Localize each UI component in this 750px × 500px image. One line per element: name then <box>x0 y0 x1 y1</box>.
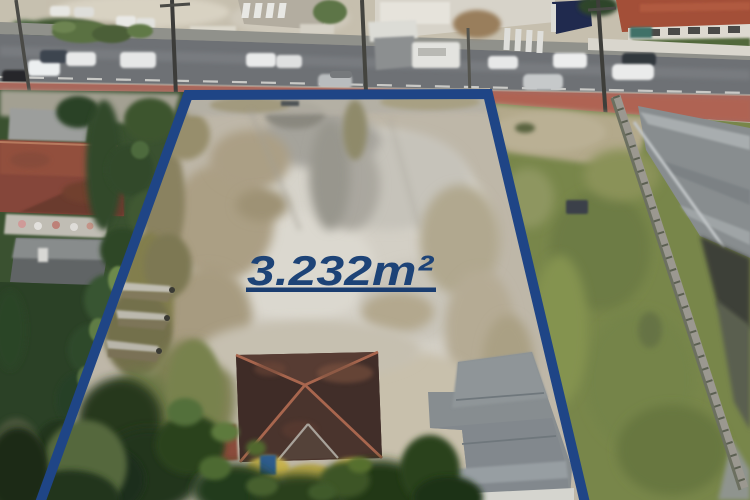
svg-text:3.232m²: 3.232m² <box>247 247 434 294</box>
